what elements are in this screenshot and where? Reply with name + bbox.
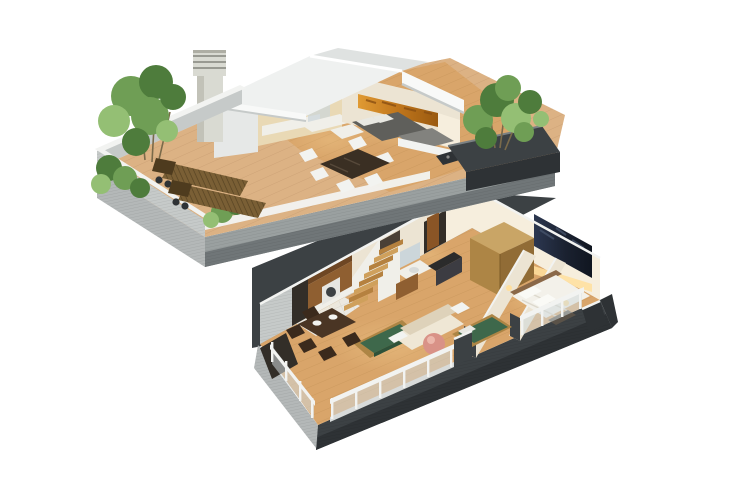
foliage xyxy=(98,105,130,137)
railing-post xyxy=(541,306,543,326)
wood-door-leaf xyxy=(427,212,439,251)
foliage xyxy=(514,122,534,142)
barbecue-knob xyxy=(446,155,449,158)
chimney-cap-top xyxy=(193,50,226,53)
railing-post xyxy=(403,367,405,388)
foliage xyxy=(156,120,178,142)
railing-post xyxy=(561,297,563,317)
railing-post xyxy=(427,356,429,377)
railing-post xyxy=(331,398,333,419)
appliance-door-icon xyxy=(326,287,336,297)
railing-post xyxy=(355,388,357,409)
railing-post xyxy=(379,377,381,398)
railing-post xyxy=(579,289,581,309)
lounger-wheel xyxy=(172,198,179,205)
bedside-lamp-1 xyxy=(506,285,512,291)
foliage xyxy=(518,90,542,114)
railing-post xyxy=(521,315,523,335)
floorplan-3d-render xyxy=(0,0,750,500)
plate xyxy=(329,314,338,319)
railing-post xyxy=(450,346,452,367)
chimney-cap xyxy=(193,50,226,76)
foliage xyxy=(533,111,549,127)
foliage xyxy=(495,75,521,101)
basin-bowl xyxy=(409,267,419,273)
bush xyxy=(130,178,150,198)
railing-post xyxy=(285,361,287,381)
railing-post xyxy=(299,381,301,401)
railing-post xyxy=(271,342,273,362)
floorplan-canvas xyxy=(0,0,750,500)
foliage xyxy=(122,128,150,156)
railing-post xyxy=(311,398,313,418)
plate xyxy=(313,320,322,325)
lounger-wheel xyxy=(181,202,188,209)
foliage xyxy=(160,84,186,110)
lounger-wheel xyxy=(155,176,162,183)
bush xyxy=(91,174,111,194)
deck-shrub xyxy=(203,212,219,228)
pink-sphere-highlight xyxy=(427,336,435,344)
foliage xyxy=(475,127,497,149)
